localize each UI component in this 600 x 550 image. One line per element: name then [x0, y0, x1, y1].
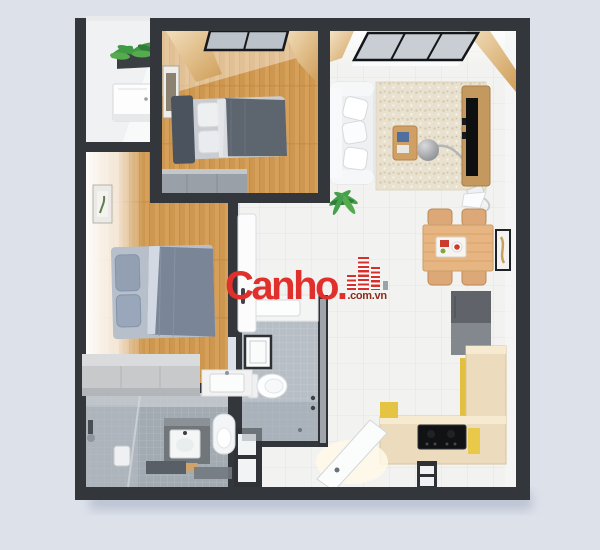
double-bed: [111, 245, 215, 340]
bath-mat: [146, 461, 186, 474]
counter-top-face: [466, 346, 506, 354]
bathroom1-glass: [320, 299, 326, 443]
headboard: [171, 95, 195, 164]
wall-art-dining: [496, 230, 510, 270]
lamp-sphere: [417, 139, 439, 161]
pillow: [116, 295, 141, 328]
mirror-cabinet: [245, 336, 271, 368]
faucet: [225, 371, 229, 375]
sofa-pillow: [343, 147, 369, 171]
sofa: [330, 82, 374, 184]
glass-handle: [311, 396, 315, 400]
sink-bowl: [176, 438, 194, 452]
pillow: [198, 130, 221, 153]
pillow: [197, 102, 220, 127]
dining-table: [423, 225, 493, 271]
tv-speaker: [462, 118, 466, 125]
book: [397, 145, 409, 153]
wardrobe: [157, 169, 247, 193]
wall-bedroom2-living: [318, 31, 330, 203]
toilet: [213, 414, 235, 454]
small-toilet: [114, 446, 130, 466]
tv-screen: [466, 98, 478, 176]
balcony-edge: [86, 16, 150, 21]
wall-bedroom2-left: [150, 18, 162, 203]
sofa-pillow: [341, 120, 367, 145]
shaft-panel: [238, 459, 256, 482]
food-tray: [436, 237, 466, 257]
coffee-table: [393, 126, 417, 160]
single-bed: [171, 92, 287, 164]
wall-balcony-divider: [75, 142, 162, 152]
wall-bottom: [75, 487, 530, 500]
wash-basin-counter: [202, 370, 252, 396]
door-handle: [335, 468, 340, 473]
basin: [210, 374, 244, 392]
building-shadow-icon: [383, 281, 388, 290]
building-icon: [371, 267, 380, 290]
glass-handle: [311, 406, 315, 410]
watermark: Canho. .com.vn: [225, 257, 388, 302]
faucet: [183, 431, 187, 435]
chair: [428, 209, 452, 226]
watermark-brand: Canho.: [225, 271, 346, 302]
building-icon: [358, 257, 369, 290]
wall-top: [150, 18, 516, 31]
counter-accent-yellow: [468, 428, 480, 454]
counter-accent-yellow: [380, 402, 398, 418]
red-striped-buildings-icon: [347, 257, 388, 290]
toilet: [248, 374, 287, 398]
counter-top-face: [380, 416, 506, 424]
watermark-domain: .com.vn: [347, 291, 386, 302]
chair: [462, 209, 486, 226]
floor-drain: [298, 428, 302, 432]
watermark-logo-column: .com.vn: [347, 257, 388, 302]
vanity-block: [164, 418, 210, 464]
wall-bedroom2-bottom: [150, 193, 330, 203]
wall-left: [75, 18, 86, 500]
tv-console: [462, 86, 490, 186]
building-icon: [347, 275, 356, 290]
floor-plan-image: Canho. .com.vn: [0, 0, 600, 550]
wall-art-master: [93, 185, 112, 223]
tv-speaker: [462, 132, 466, 139]
bench: [82, 354, 200, 396]
living-window: [354, 33, 478, 60]
cooktop: [418, 425, 466, 449]
step-stool: [417, 461, 437, 489]
refrigerator: [451, 291, 491, 355]
shower-zone: [242, 402, 318, 441]
wall-right: [516, 18, 530, 500]
bath-mat: [194, 467, 232, 479]
pillow: [115, 255, 140, 292]
book: [397, 132, 409, 142]
washing-machine: [113, 84, 152, 121]
